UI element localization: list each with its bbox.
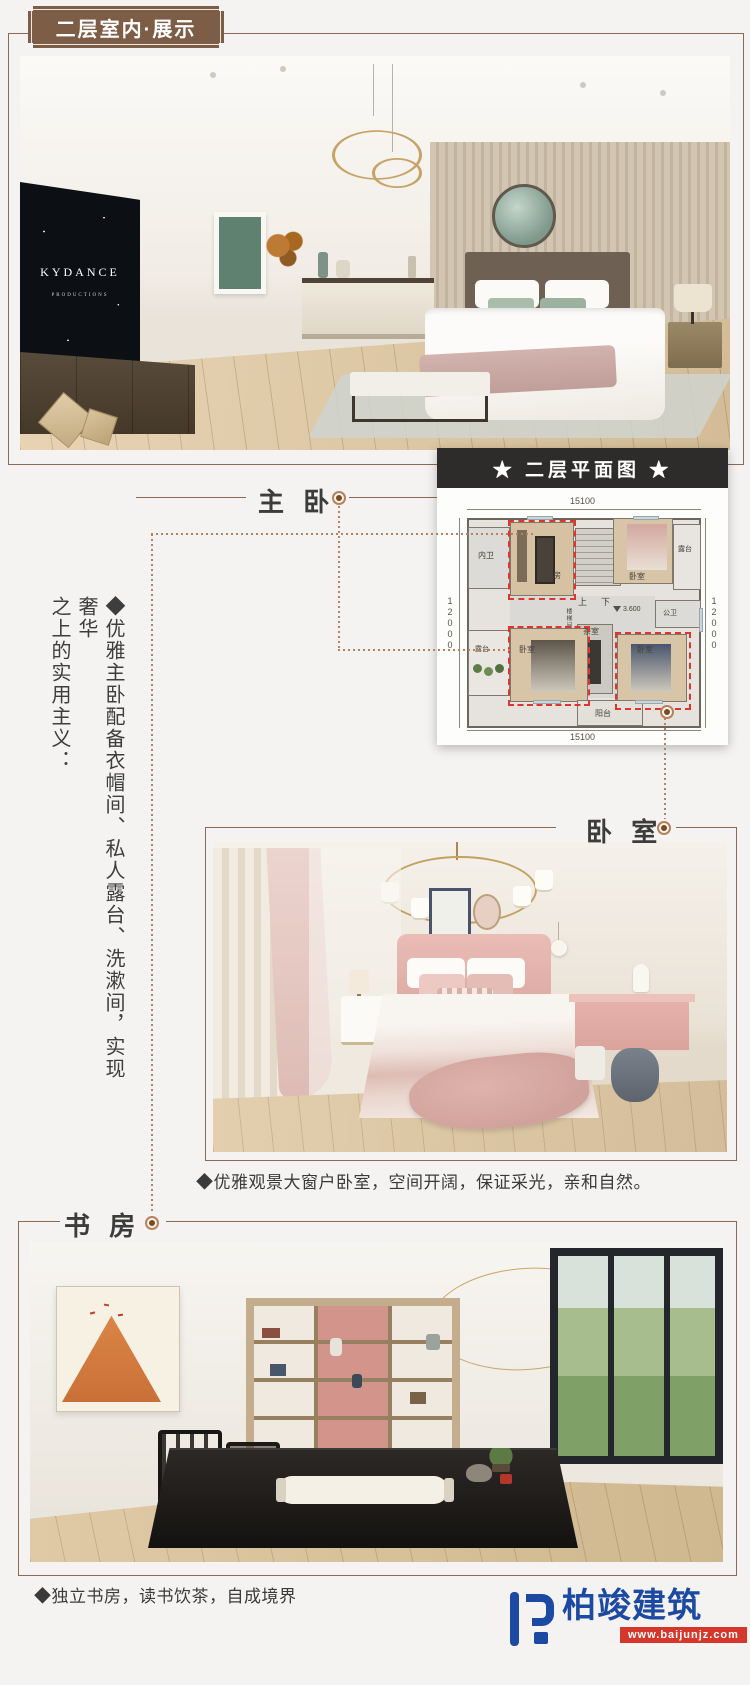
plan-terrace-right — [673, 524, 701, 590]
round-mirror — [492, 184, 556, 248]
study-frame-top-left — [18, 1221, 60, 1222]
wall-artwork — [214, 212, 266, 294]
chandelier-shade — [411, 898, 429, 920]
logo-icon — [504, 1588, 556, 1650]
window-pane — [614, 1256, 664, 1456]
plan-label-balcony: 阳台 — [595, 710, 611, 718]
study-frame-left — [18, 1221, 19, 1576]
bedroom-frame-right — [736, 827, 737, 1161]
bedroom-caption: ◆优雅观景大窗户卧室，空间开阔，保证采光，亲和自然。 — [196, 1168, 651, 1193]
study-frame-bottom — [18, 1575, 737, 1576]
vase — [352, 1374, 362, 1388]
dim-left: 12000 — [445, 596, 454, 651]
pouf-ottoman — [611, 1048, 659, 1102]
ceiling-spotlight — [660, 90, 666, 96]
study-frame-top-right — [166, 1221, 736, 1222]
plan-label-terrace-right: 露台 — [678, 546, 692, 553]
study-caption: ◆独立书房，读书饮茶，自成境界 — [34, 1582, 297, 1607]
candle-decor — [408, 256, 416, 278]
table-lamp — [349, 970, 369, 994]
plan-terrace-left — [468, 630, 510, 696]
study-photo — [30, 1242, 723, 1562]
dried-flower-decor — [266, 228, 306, 272]
chandelier-shade — [513, 886, 531, 908]
pendant-cord — [373, 64, 374, 116]
plan-highlight-bedroom-right — [615, 632, 691, 710]
plan-plant — [495, 664, 504, 673]
plan-plant — [473, 664, 482, 673]
dim-top: 15100 — [570, 497, 595, 506]
plan-window — [699, 608, 703, 632]
plan-highlight-study — [508, 520, 576, 600]
dim-bottom: 15100 — [570, 733, 595, 742]
bench-frame — [352, 396, 488, 422]
connector-dot-icon — [332, 491, 346, 505]
vase — [318, 252, 328, 278]
master-bedroom-photo: KYDANCE PRODUCTIONS — [20, 56, 730, 450]
label-rule-right — [349, 497, 437, 498]
scroll-end — [444, 1478, 454, 1502]
scroll-painting — [278, 1476, 448, 1504]
ceiling-spotlight — [280, 66, 286, 72]
label-rule-left — [136, 497, 246, 498]
plan-room-public-bath — [655, 600, 701, 628]
plan-highlight-bedroom-left — [508, 626, 590, 706]
vanity-stool — [575, 1046, 605, 1080]
wall-lamp-cord — [558, 922, 559, 940]
tea-cup — [500, 1474, 512, 1484]
bedroom-frame-left — [205, 827, 206, 1161]
ceiling-spotlight — [580, 82, 586, 88]
window-pane — [558, 1256, 608, 1456]
logo-website: www.baijunjz.com — [620, 1627, 747, 1643]
nightstand — [668, 322, 722, 368]
vase — [330, 1338, 342, 1356]
plan-label-bedroom-top: 卧室 — [629, 573, 645, 581]
bedroom-frame-top-left — [205, 827, 556, 828]
table-lamp-stem — [691, 310, 694, 324]
vanity-cabinet — [575, 1002, 689, 1050]
side-note-line2: 之上的实用主义： — [45, 596, 72, 1082]
connector-dotted-study — [151, 533, 533, 535]
plan-bed-top — [627, 524, 667, 570]
brand-logo: 柏竣建筑 www.baijunjz.com — [504, 1588, 748, 1650]
bonsai-pot — [492, 1464, 510, 1472]
plan-label-stair-down: 下 — [601, 598, 610, 607]
bedroom-photo — [213, 842, 727, 1152]
table-lamp-shade — [674, 284, 712, 312]
bedroom-label: 卧 室 — [586, 812, 663, 849]
section-badge: 二层室内·展示 — [28, 6, 224, 48]
plan-label-stair-up: 上 — [578, 598, 587, 607]
floorplan-title: ★ 二层平面图 ★ — [437, 448, 728, 488]
window-pane — [670, 1256, 715, 1456]
tv-brand-text: KYDANCE — [20, 265, 140, 280]
plan-label-public-bath: 公卫 — [663, 610, 677, 617]
connector-dotted-left — [151, 534, 153, 1214]
bedroom-frame-bottom — [205, 1160, 737, 1161]
connector-dotted-master — [338, 506, 340, 649]
tv-screen: KYDANCE PRODUCTIONS — [20, 182, 140, 380]
books — [262, 1328, 280, 1338]
connector-dot-icon — [657, 821, 671, 835]
ring-pendant-light — [372, 158, 422, 188]
connector-dot-icon — [660, 705, 674, 719]
logo-company-name: 柏竣建筑 — [562, 1588, 747, 1625]
vanity-desktop — [569, 994, 695, 1002]
study-label: 书 房 — [64, 1206, 141, 1243]
connector-dot-icon — [145, 1216, 159, 1230]
floorplan-card: ★ 二层平面图 ★ 15100 12000 12000 15100 — [437, 448, 728, 745]
ceiling-spotlight — [210, 72, 216, 78]
side-note-line1: ◆优雅主卧配备衣帽间、私人露台、洗漱间，实现奢华 — [72, 596, 126, 1082]
tv-brand-subtext: PRODUCTIONS — [20, 293, 140, 298]
dim-line — [467, 509, 701, 510]
plan-window — [633, 516, 659, 520]
bedroom-frame-top-right — [676, 827, 737, 828]
elevation-mark-icon — [613, 606, 621, 612]
dim-line — [459, 518, 460, 728]
decor-object — [426, 1334, 440, 1350]
plan-plant — [484, 667, 493, 676]
master-label: 主 卧 — [258, 482, 335, 519]
study-frame-right — [736, 1221, 737, 1576]
side-note: ◆优雅主卧配备衣帽间、私人露台、洗漱间，实现奢华 之上的实用主义： — [46, 596, 126, 1096]
scroll-end — [276, 1478, 286, 1502]
page: 二层室内·展示 KYDANCE — [0, 0, 750, 1685]
wall-lamp — [551, 940, 567, 956]
oval-portrait-frame — [473, 894, 501, 930]
chandelier-shade — [535, 870, 553, 892]
bench-cushion — [350, 372, 490, 396]
plan-label-inner-bath: 内卫 — [478, 552, 494, 560]
sideboard — [302, 278, 434, 339]
decor-box — [410, 1392, 426, 1404]
dim-line — [705, 518, 706, 728]
vanity-lamp — [633, 964, 649, 992]
floorplan-body: 15100 12000 12000 15100 — [437, 488, 728, 745]
badge-title: 二层室内·展示 — [31, 9, 221, 45]
books — [270, 1364, 286, 1376]
plan-label-elevation: 3.600 — [623, 606, 641, 613]
vase — [336, 260, 350, 278]
dim-right: 12000 — [709, 596, 718, 651]
connector-dotted-bedroom — [664, 718, 666, 819]
connector-dotted-bedroom-left — [338, 649, 512, 651]
